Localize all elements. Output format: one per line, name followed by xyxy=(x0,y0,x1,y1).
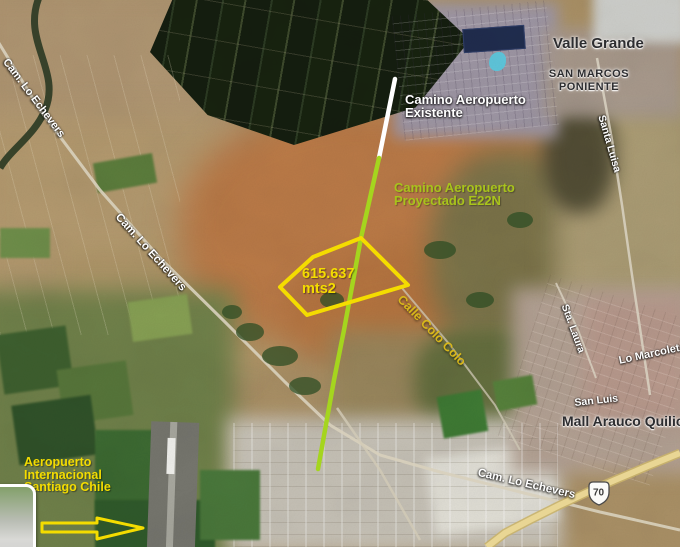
projected-airport-road-line xyxy=(318,158,379,469)
crop-field xyxy=(128,294,193,342)
terrain-tan-midleft xyxy=(60,250,290,370)
airport-direction-arrow xyxy=(42,518,143,539)
satellite-map-canvas: 70 Valle Grande SAN MARCOS PONIENTE Mall… xyxy=(0,0,680,547)
route-70-shield: 70 xyxy=(589,482,609,505)
crop-field xyxy=(437,389,489,438)
street-label-cam-lo-echevers-3: Cam. Lo Echevers xyxy=(476,468,576,502)
tree-clumps xyxy=(222,212,533,395)
airport-runway xyxy=(147,421,200,547)
annotation-projected-road: Camino Aeropuerto Proyectado E22N xyxy=(394,181,515,207)
label-valle-grande: Valle Grande xyxy=(553,36,644,51)
crop-field xyxy=(493,375,538,411)
street-label-calle-colo-colo: Calle Colo Colo xyxy=(395,293,468,368)
label-san-luis: San Luis xyxy=(574,393,619,408)
crop-field xyxy=(0,325,74,394)
street-label-cam-lo-echevers-1: Cam. Lo Echevers xyxy=(0,57,66,140)
annotation-projected-line2: Proyectado E22N xyxy=(394,194,515,207)
crop-field xyxy=(95,500,215,547)
street-label-lo-marcoleta: Lo Marcoleta xyxy=(618,342,680,367)
terrain-arid-lower xyxy=(290,245,560,375)
inset-thumbnail xyxy=(0,484,36,547)
annotation-airport-line1: Aeropuerto xyxy=(24,456,111,469)
road-branch-south xyxy=(337,408,420,540)
pond xyxy=(489,52,506,71)
runway-threshold xyxy=(166,438,175,474)
annotation-area-value: 615.637 xyxy=(302,267,354,282)
crop-field xyxy=(200,470,260,540)
label-san-marcos-line1: SAN MARCOS xyxy=(549,68,629,80)
terrain-tan-right xyxy=(555,85,680,315)
crop-field xyxy=(57,360,134,424)
highway-70 xyxy=(487,453,680,547)
annotation-airport: Aeropuerto Internacional Santiago Chile xyxy=(24,456,111,494)
route-70-number: 70 xyxy=(593,488,605,499)
street-label-cam-lo-echevers-2: Cam. Lo Echevers xyxy=(112,212,187,294)
label-san-marcos-poniente: SAN MARCOS PONIENTE xyxy=(547,68,631,94)
urban-grid-texture-right xyxy=(498,274,680,485)
runway-centerline xyxy=(166,422,178,547)
crop-field xyxy=(93,153,157,193)
crop-field xyxy=(0,228,50,258)
annotation-existing-line2: Existente xyxy=(405,106,526,119)
street-label-santa-luisa: Santa Luisa xyxy=(596,114,622,174)
label-mall-arauco-quilicura: Mall Arauco Quilicura xyxy=(562,414,680,428)
road-santa-luisa xyxy=(597,58,650,395)
annotation-existing-road: Camino Aeropuerto Existente xyxy=(405,93,526,119)
navy-warehouse-roof xyxy=(462,25,526,53)
street-label-sta-laura: Sta. Laura xyxy=(559,303,586,354)
terrain-tan-left xyxy=(0,120,240,370)
annotation-airport-line3: Santiago Chile xyxy=(24,481,111,494)
terrain-arid-center xyxy=(180,105,590,355)
annotation-area-unit: mts2 xyxy=(302,282,354,297)
existing-airport-road-line xyxy=(379,79,395,158)
dark-crop-fields xyxy=(150,0,470,145)
annotation-parcel-area: 615.637 mts2 xyxy=(302,267,354,296)
label-san-marcos-line2: PONIENTE xyxy=(559,81,619,93)
highway-70-casing xyxy=(487,453,680,547)
urban-zone-right xyxy=(512,288,680,473)
